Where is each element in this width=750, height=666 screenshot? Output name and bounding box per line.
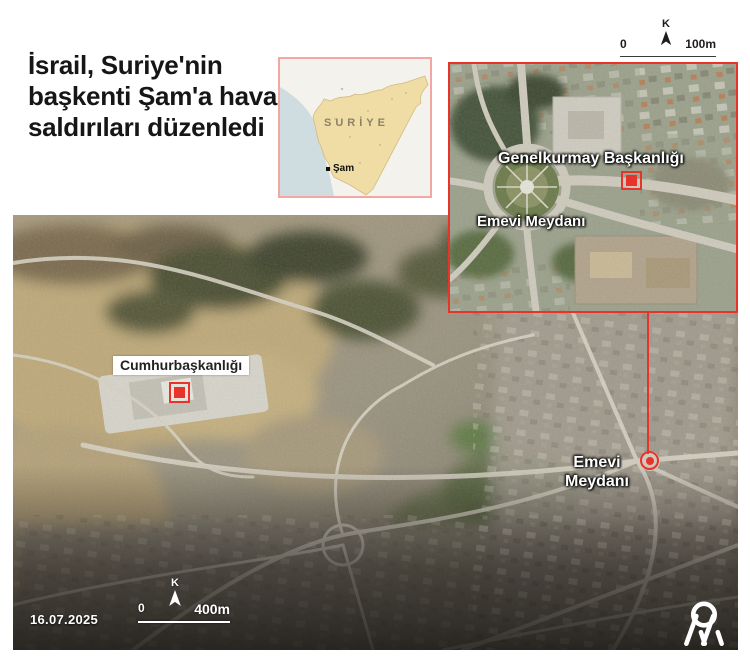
aa-monogram-icon [681,599,727,647]
scale-line [138,621,230,623]
anadolu-agency-logo [681,599,727,647]
capital-sam-label: Şam [326,163,354,174]
emevi-label-line2: Meydanı [552,472,642,491]
imagery-date-label: 16.07.2025 [30,612,98,627]
north-arrow-icon [168,590,182,612]
inset-satellite-imagery [450,64,736,311]
syria-locator-map: SURİYE Şam [278,57,432,198]
capital-name: Şam [333,163,354,174]
emevi-square-circle-marker [640,451,659,470]
inset-connector-line [647,311,649,454]
emevi-square-inset-map [448,62,738,313]
north-label: K [171,577,179,589]
emevi-label-line1: Emevi [552,453,642,472]
north-label: K [662,18,670,30]
scale-start: 0 [138,601,145,615]
presidency-target-marker [174,387,185,398]
syria-country-shape [313,76,428,195]
emevi-square-main-label: Emevi Meydanı [552,453,642,491]
infographic-canvas: İsrail, Suriye'nin başkenti Şam'a hava s… [0,0,750,666]
emevi-square-marker-dot [646,457,654,465]
scale-bar-400m: K 0 400m [138,577,230,623]
map-shade-overlay [13,465,738,650]
scale-end: 400m [194,601,230,617]
airstrike-target-marker [626,175,637,186]
scale-line [620,56,716,58]
city-marker-icon [326,167,330,171]
syria-country-label: SURİYE [324,117,389,129]
presidency-label: Cumhurbaşkanlığı [113,356,249,375]
headline: İsrail, Suriye'nin başkenti Şam'a hava s… [28,50,298,143]
scale-start: 0 [620,37,627,51]
general-staff-hq-label: Genelkurmay Başkanlığı [498,150,684,168]
north-arrow-icon [660,31,672,51]
scale-bar-100m: K 0 100m [620,20,716,57]
emevi-square-inset-label: Emevi Meydanı [477,213,585,230]
scale-end: 100m [685,37,716,51]
